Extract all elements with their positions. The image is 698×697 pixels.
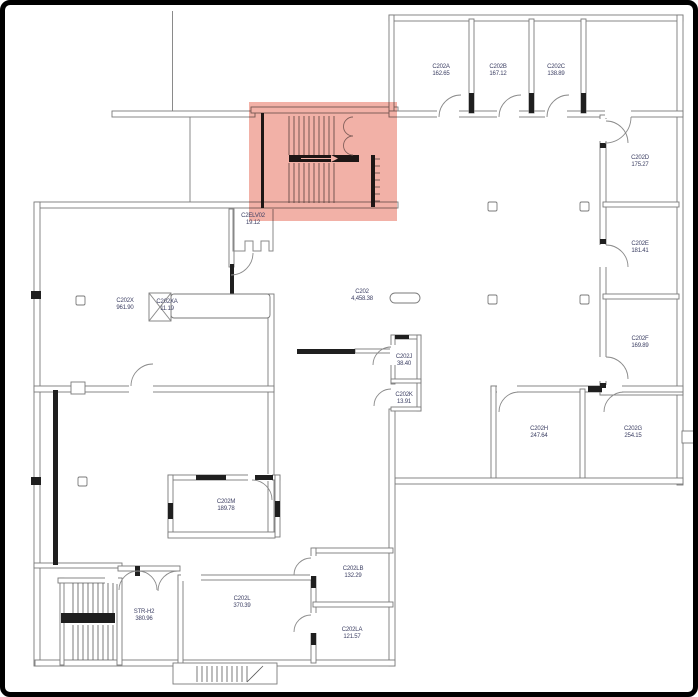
corridor-lines <box>173 11 191 203</box>
floorplan-viewport: C202A162.65C202B167.12C202C138.89C202D17… <box>0 0 698 697</box>
stair-bottom-exit <box>173 663 277 684</box>
highlight-region[interactable] <box>249 102 397 221</box>
